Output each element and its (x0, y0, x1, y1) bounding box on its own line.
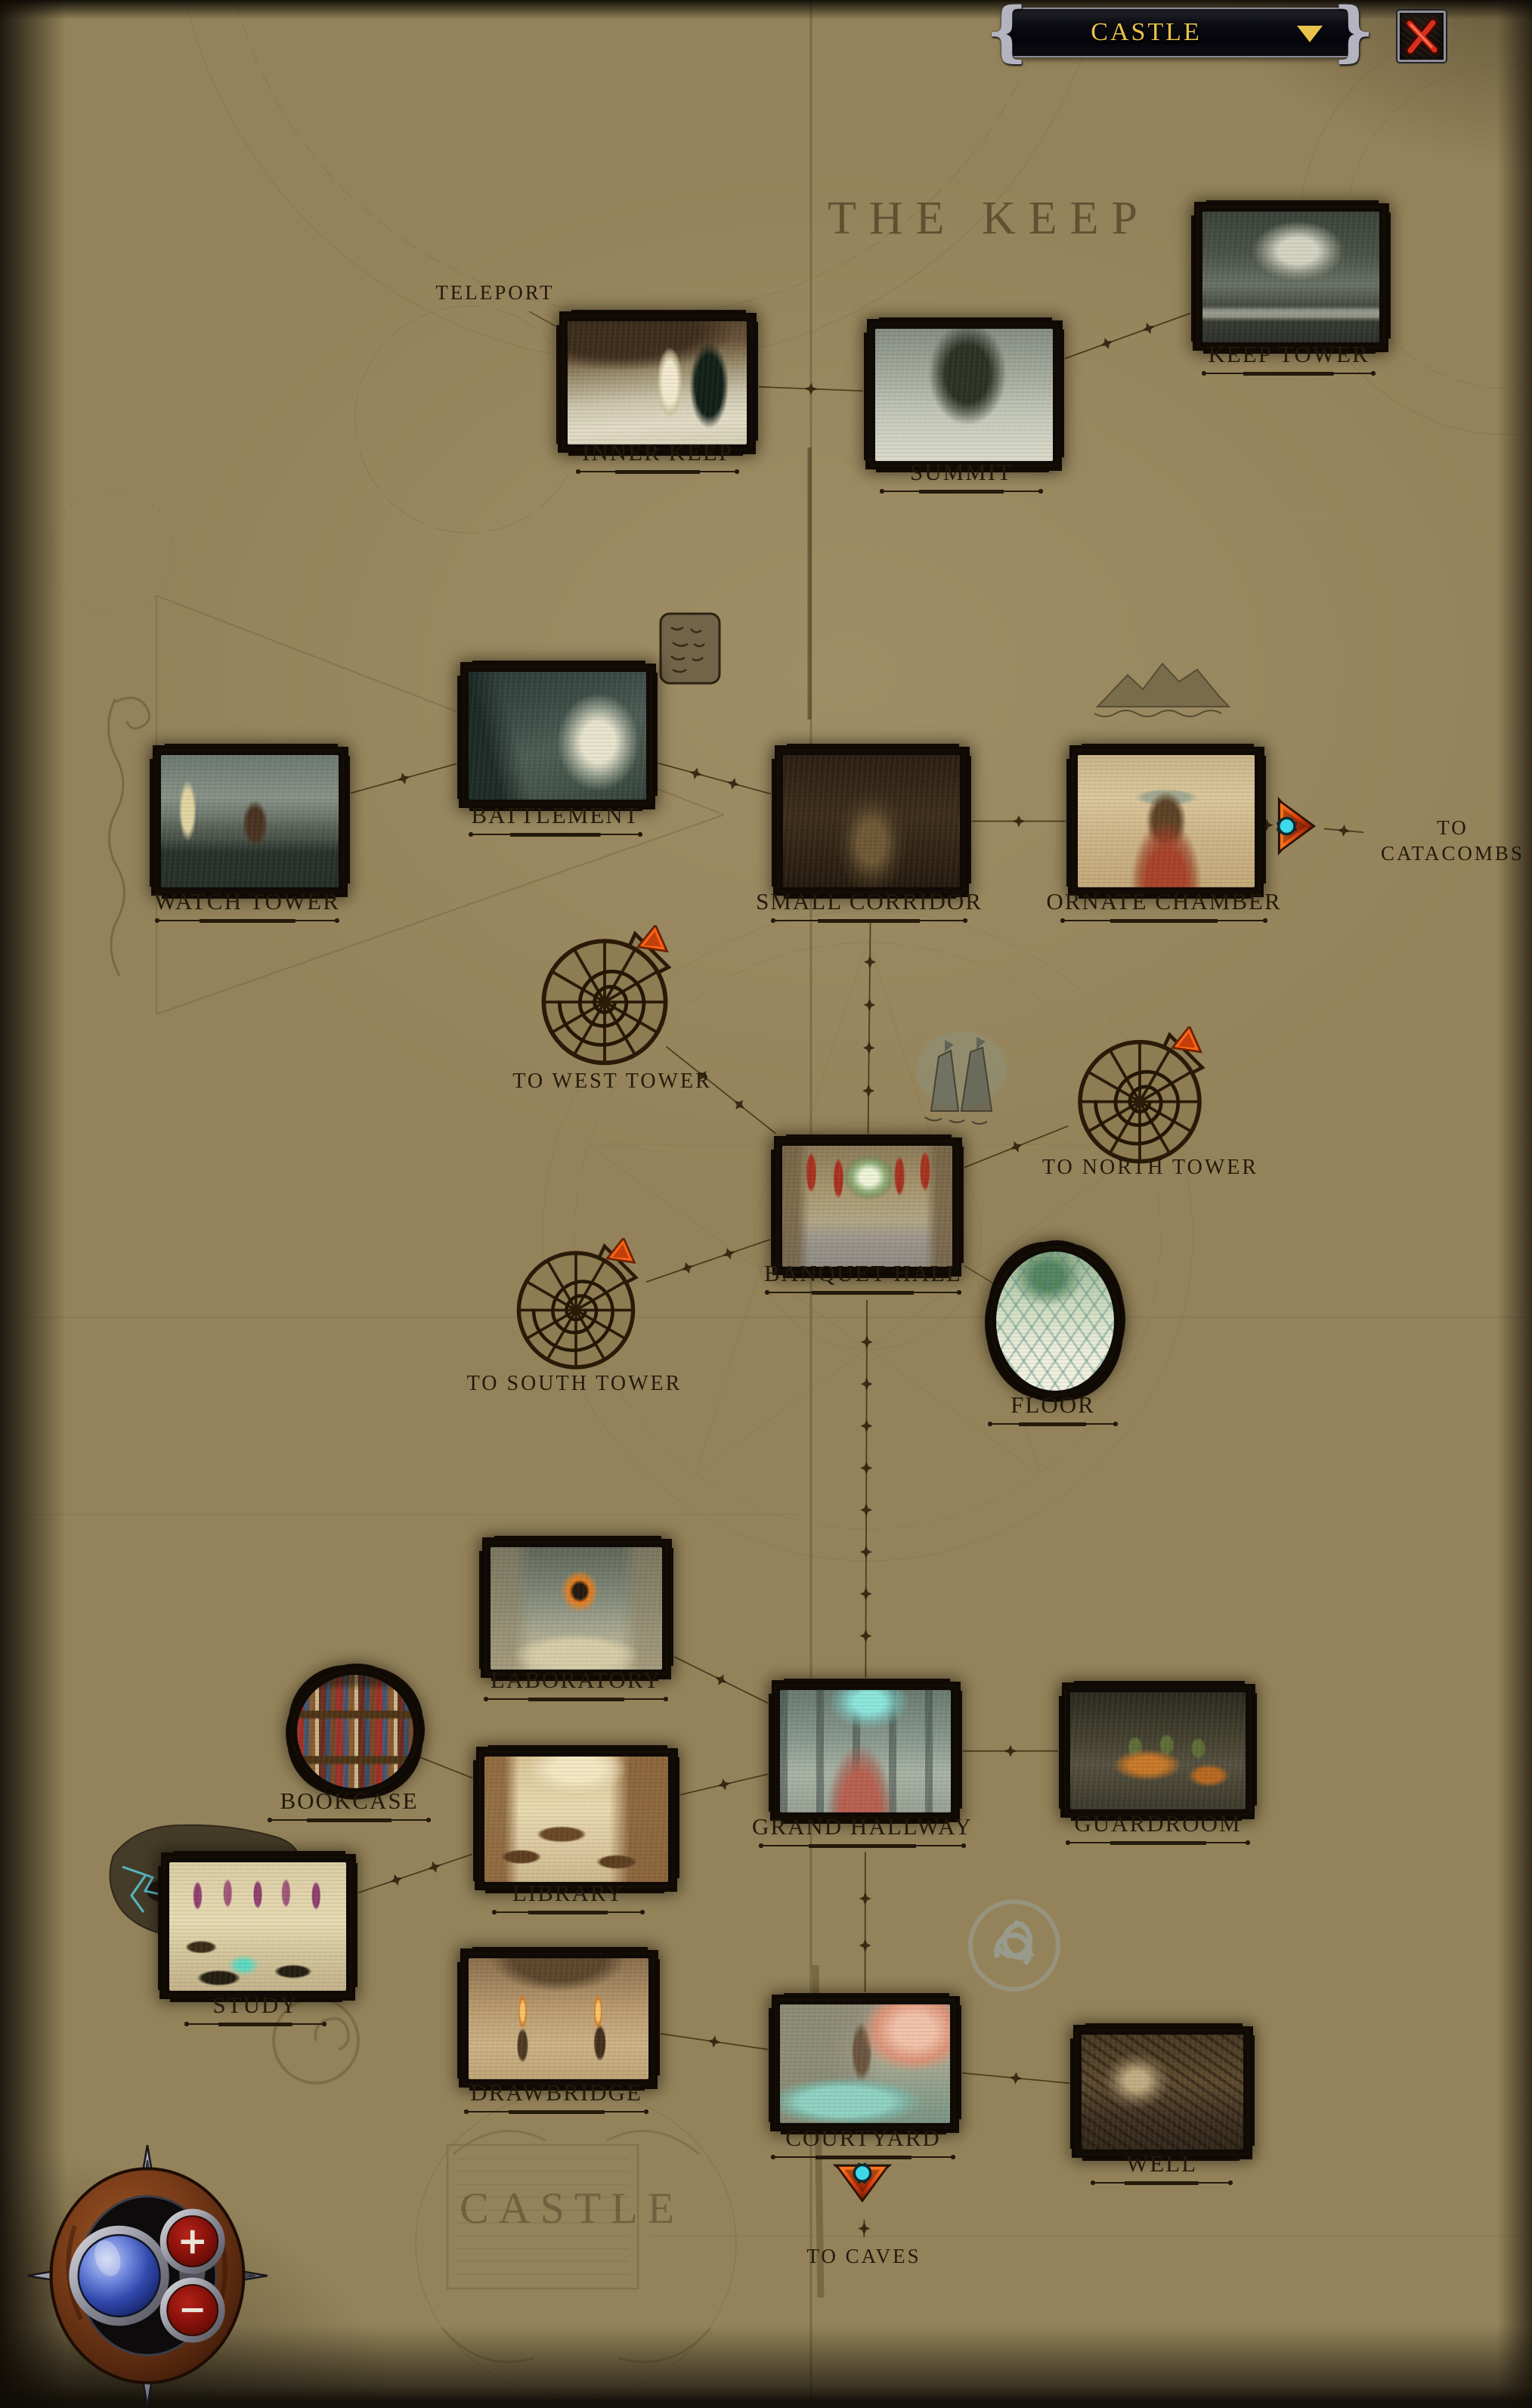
compass-zoom-control: + − (21, 2142, 274, 2408)
map-node-guardroom[interactable] (1064, 1686, 1252, 1815)
region-heading-castle: CASTLE (460, 2183, 684, 2233)
teleport-annotation: TELEPORT (423, 280, 567, 305)
towers-sketch (916, 1032, 1007, 1124)
exit-catacombs-label: TO CATACOMBS (1370, 815, 1532, 866)
map-node-grand-hallway[interactable] (774, 1684, 957, 1818)
watch-tower-label: WATCH TOWER (119, 889, 376, 924)
grand-hallway-label: GRAND HALLWAY (719, 1814, 1006, 1849)
banquet-hall-label: BANQUET HALL (727, 1261, 999, 1296)
exit-south-tower-stair-icon[interactable] (508, 1238, 644, 1374)
exit-catacombs-arrow-icon[interactable] (1271, 794, 1318, 859)
castle-map-screen: ❴ CASTLE ❵ THE KEEP CASTLE TELEPORT INNE… (0, 0, 1532, 2408)
label-underline (484, 1695, 669, 1703)
close-x-icon (1400, 13, 1444, 60)
dropdown-body: CASTLE (1003, 8, 1357, 57)
summit-label: SUMMIT (848, 460, 1075, 495)
library-label: LIBRARY (463, 1880, 674, 1916)
battlement-thumbnail (469, 672, 646, 800)
label-underline (492, 1908, 645, 1916)
dropdown-selected-value: CASTLE (1004, 9, 1288, 56)
label-underline (1091, 2179, 1232, 2187)
well-thumbnail (1082, 2035, 1243, 2150)
battlement-label: BATTLEMENT (435, 803, 676, 838)
bookcase-label: BOOKCASE (236, 1788, 463, 1824)
well-label: WELL (1063, 2151, 1260, 2187)
map-node-laboratory[interactable] (484, 1541, 668, 1676)
map-node-library[interactable] (478, 1750, 674, 1888)
drawbridge-thumbnail (469, 1958, 648, 2079)
watch-tower-thumbnail (161, 755, 339, 887)
label-underline (184, 2020, 326, 2028)
label-underline (771, 2153, 956, 2161)
map-node-summit[interactable] (869, 323, 1059, 467)
label-underline (1060, 917, 1267, 924)
banquet-hall-thumbnail (782, 1146, 952, 1267)
study-thumbnail (169, 1862, 346, 1991)
zoom-out-button[interactable]: − (163, 2281, 221, 2339)
courtyard-label: COURTYARD (735, 2125, 992, 2161)
map-node-study[interactable] (163, 1856, 352, 1997)
exit-north-tower-label: TO NORTH TOWER (1014, 1155, 1286, 1181)
small-corridor-thumbnail (783, 755, 960, 887)
label-underline (759, 1842, 966, 1849)
map-node-well[interactable] (1075, 2029, 1249, 2156)
castle-emblem-sketch (416, 2091, 736, 2396)
map-node-banquet-hall[interactable] (776, 1140, 958, 1273)
label-underline (268, 1816, 431, 1824)
small-corridor-label: SMALL CORRIDOR (733, 889, 1005, 924)
inner-keep-label: INNER KEEP (544, 440, 771, 475)
label-underline (988, 1420, 1119, 1428)
region-heading-the-keep: THE KEEP (828, 192, 1150, 246)
map-node-battlement[interactable] (463, 666, 652, 806)
map-node-bookcase[interactable] (291, 1669, 419, 1794)
keep-tower-thumbnail (1202, 212, 1379, 342)
map-node-small-corridor[interactable] (777, 749, 966, 893)
triskelion-sketch (970, 1902, 1058, 1989)
guardroom-thumbnail (1070, 1692, 1246, 1809)
dropdown-caret-icon (1297, 26, 1323, 42)
exit-west-tower-label: TO WEST TOWER (491, 1069, 733, 1094)
exit-south-tower-label: TO SOUTH TOWER (438, 1371, 710, 1397)
map-node-keep-tower[interactable] (1196, 206, 1385, 348)
zoom-in-button[interactable]: + (163, 2212, 221, 2270)
location-dropdown[interactable]: ❴ CASTLE ❵ (992, 8, 1368, 57)
floor-label: FLOOR (962, 1392, 1144, 1428)
laboratory-label: LABORATORY (447, 1667, 704, 1703)
label-underline (464, 2108, 649, 2116)
close-button[interactable] (1397, 11, 1446, 62)
map-node-inner-keep[interactable] (562, 315, 753, 450)
label-underline (771, 917, 967, 924)
map-node-ornate-chamber[interactable] (1072, 749, 1261, 893)
label-underline (765, 1289, 961, 1296)
map-node-courtyard[interactable] (774, 1998, 956, 2129)
ornate-chamber-thumbnail (1078, 755, 1255, 887)
label-underline (469, 831, 642, 838)
drawbridge-label: DRAWBRIDGE (428, 2080, 685, 2116)
laboratory-thumbnail (491, 1547, 662, 1670)
label-underline (155, 917, 340, 924)
guardroom-label: GUARDROOM (1029, 1811, 1286, 1846)
keep-tower-label: KEEP TOWER (1168, 342, 1410, 377)
map-node-floor[interactable] (990, 1246, 1120, 1397)
dropdown-left-ornament: ❴ (980, 2, 1035, 62)
label-underline (576, 468, 739, 475)
map-node-drawbridge[interactable] (463, 1952, 655, 2085)
study-label: STUDY (157, 1992, 354, 2028)
mountain-sketch (1094, 664, 1229, 717)
summit-thumbnail (875, 329, 1053, 461)
compass-orb (79, 2235, 159, 2316)
map-node-watch-tower[interactable] (155, 749, 345, 893)
label-underline (1066, 1839, 1251, 1846)
label-underline (880, 487, 1043, 495)
library-thumbnail (484, 1756, 668, 1882)
exit-west-tower-stair-icon[interactable] (532, 925, 677, 1070)
label-underline (1202, 370, 1376, 377)
ornate-chamber-label: ORNATE CHAMBER (1020, 889, 1308, 924)
bookcase-thumbnail (297, 1675, 413, 1788)
exit-caves-arrow-icon[interactable] (832, 2153, 897, 2214)
courtyard-thumbnail (780, 2004, 950, 2123)
grand-hallway-thumbnail (780, 1690, 951, 1812)
inner-keep-thumbnail (568, 321, 747, 444)
rune-tablet-sketch (661, 614, 720, 683)
floor-thumbnail (996, 1252, 1114, 1391)
plus-icon: + (177, 2221, 208, 2263)
exit-caves-label: TO CAVES (766, 2243, 962, 2269)
exit-north-tower-stair-icon[interactable] (1069, 1026, 1211, 1168)
dropdown-right-ornament: ❵ (1326, 2, 1380, 62)
minus-icon: − (178, 2291, 206, 2329)
